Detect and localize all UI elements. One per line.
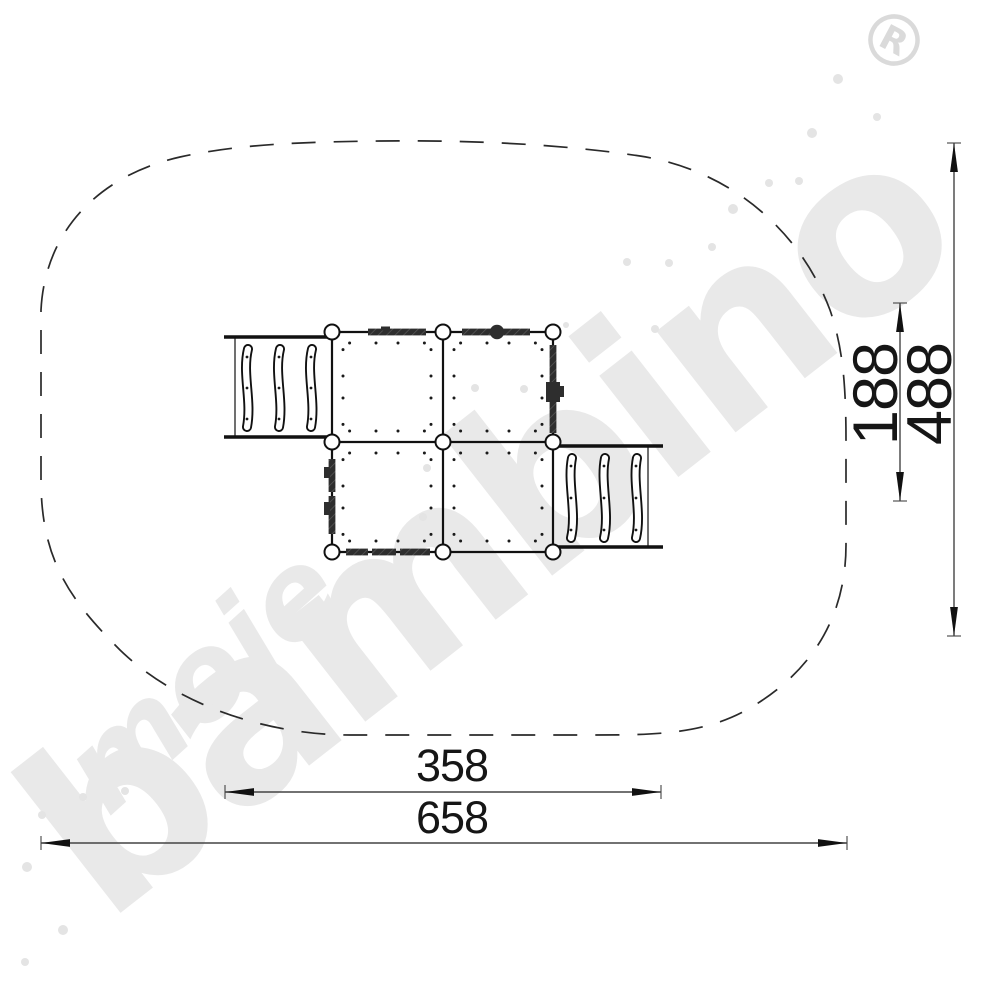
post-marker: [325, 435, 340, 450]
dimension-label-inner-width: 358: [416, 740, 488, 791]
post-marker: [325, 325, 340, 340]
dimension-label-inner-height: 188: [841, 343, 911, 445]
registered-trademark-icon: R: [862, 8, 926, 72]
diagram-canvas: bambino moje R: [0, 0, 1000, 1000]
post-marker: [436, 325, 451, 340]
watermark-bambino-text: bambino: [0, 81, 1000, 969]
post-marker: [325, 545, 340, 560]
brand-watermark: bambino moje R: [0, 8, 1000, 969]
post-marker: [546, 435, 561, 450]
dimension-label-outer-width: 658: [416, 792, 488, 843]
post-marker: [546, 325, 561, 340]
post-marker: [546, 545, 561, 560]
climbing-wall-left: [224, 337, 332, 437]
post-marker: [436, 435, 451, 450]
post-marker: [436, 545, 451, 560]
playground-plan-drawing: bambino moje R: [0, 0, 1000, 1000]
